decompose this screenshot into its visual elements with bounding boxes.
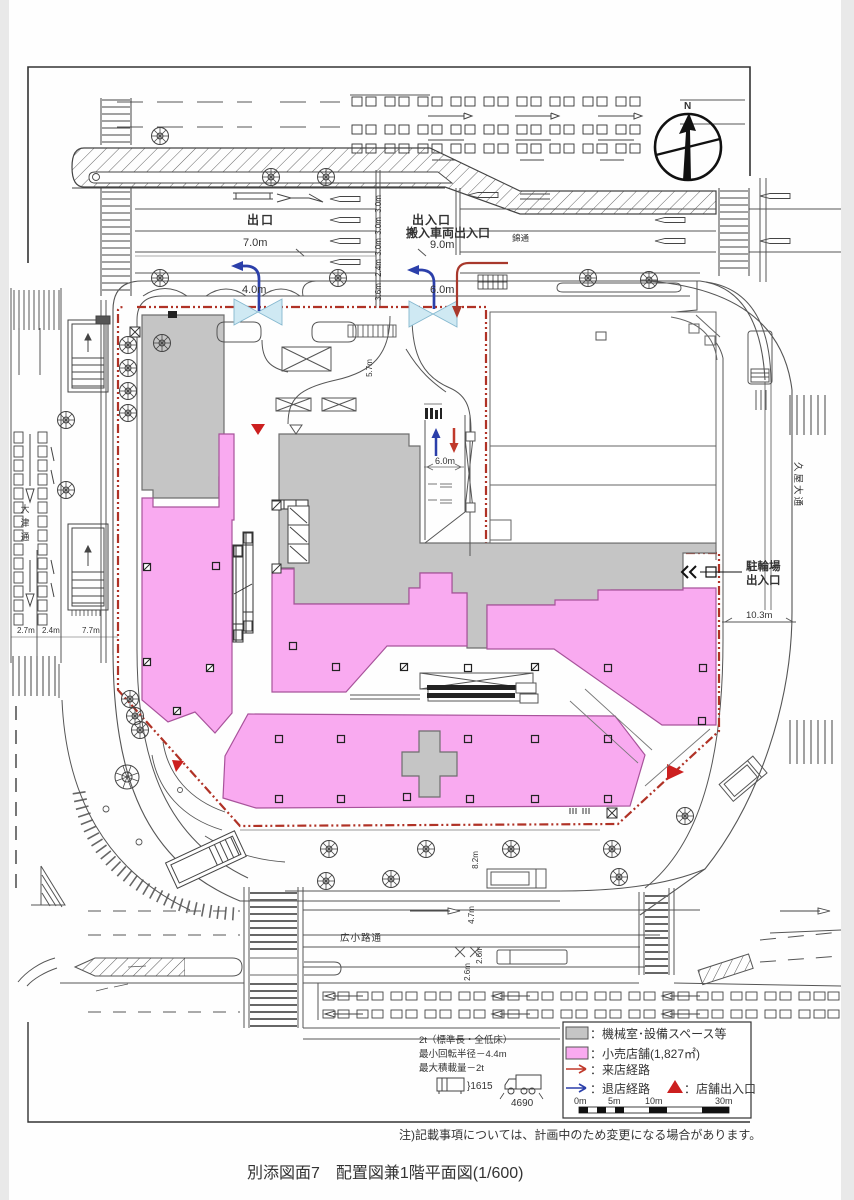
svg-text:7.7m: 7.7m: [82, 626, 100, 635]
svg-text:2.6m: 2.6m: [463, 963, 472, 981]
svg-text:津: 津: [20, 518, 29, 528]
svg-text:錦通: 錦通: [512, 233, 530, 243]
svg-text:3.0m: 3.0m: [374, 238, 383, 256]
svg-text:7.0m: 7.0m: [243, 237, 267, 249]
svg-text:6.0m: 6.0m: [435, 456, 455, 466]
svg-text:5m: 5m: [608, 1096, 621, 1106]
svg-text:：店舗出入口: ：店舗出入口: [684, 1082, 756, 1096]
svg-text:出入口: 出入口: [746, 573, 781, 587]
svg-text:出口: 出口: [247, 212, 275, 227]
svg-text:4690: 4690: [511, 1098, 534, 1109]
svg-text:3.0m: 3.0m: [374, 217, 383, 235]
svg-text:2.4m: 2.4m: [374, 259, 383, 277]
svg-text:：退店経路: ：退店経路: [590, 1081, 650, 1096]
svg-text:2.6m: 2.6m: [475, 946, 484, 964]
svg-text:5.7m: 5.7m: [365, 359, 374, 377]
svg-text:4.0m: 4.0m: [242, 284, 266, 296]
svg-text:別添図面7 配置図兼1階平面図(1/600): 別添図面7 配置図兼1階平面図(1/600): [247, 1164, 524, 1182]
svg-text:4.7m: 4.7m: [467, 906, 476, 924]
svg-text:N: N: [684, 101, 691, 112]
svg-text:：機械室･設備スペース等: ：機械室･設備スペース等: [590, 1026, 727, 1041]
svg-text:：小売店舗(1,827㎡): ：小売店舗(1,827㎡): [590, 1046, 700, 1061]
svg-text:大: 大: [20, 503, 29, 514]
svg-text:駐輪場: 駐輪場: [746, 559, 781, 573]
svg-text:広小路通: 広小路通: [340, 932, 382, 944]
svg-text:通: 通: [20, 532, 29, 542]
svg-text:8.2m: 8.2m: [471, 851, 480, 869]
svg-text:：来店経路: ：来店経路: [590, 1062, 650, 1077]
svg-text:0m: 0m: [574, 1096, 587, 1106]
svg-text:2t（標準長・全低床）: 2t（標準長・全低床）: [419, 1034, 512, 1046]
svg-text:10m: 10m: [645, 1096, 663, 1106]
svg-text:最小回転半径－4.4m: 最小回転半径－4.4m: [419, 1048, 507, 1060]
svg-text:2.4m: 2.4m: [42, 626, 60, 635]
svg-text:6.0m: 6.0m: [430, 284, 454, 296]
svg-text:10.3m: 10.3m: [746, 610, 772, 621]
svg-text:出入口: 出入口: [412, 212, 451, 227]
svg-text:3.6m: 3.6m: [374, 283, 383, 301]
svg-text:2.7m: 2.7m: [17, 626, 35, 635]
svg-text:注)記載事項については、計画中のため変更になる場合があります: 注)記載事項については、計画中のため変更になる場合があります。: [399, 1127, 761, 1142]
svg-text:9.0m: 9.0m: [430, 239, 454, 251]
svg-text:}1615: }1615: [467, 1081, 493, 1092]
svg-text:3.0m: 3.0m: [374, 195, 383, 213]
svg-text:30m: 30m: [715, 1096, 733, 1106]
svg-text:搬入車両出入口: 搬入車両出入口: [406, 225, 490, 240]
svg-text:久屋大通: 久屋大通: [792, 462, 804, 508]
svg-text:最大積載量－2t: 最大積載量－2t: [419, 1062, 484, 1074]
